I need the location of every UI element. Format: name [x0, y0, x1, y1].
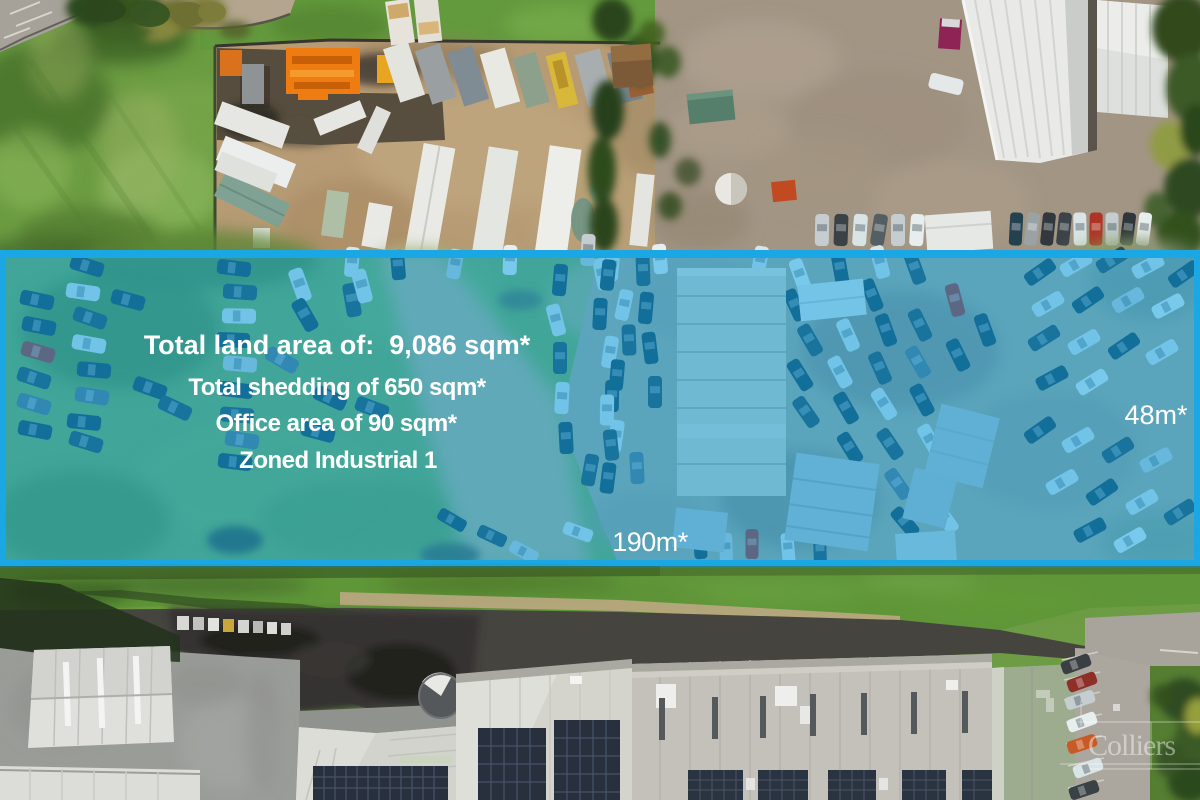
svg-text:Total land area of: 9,086 sqm: Total land area of: 9,086 sqm* [144, 330, 531, 360]
svg-text:Colliers: Colliers [1088, 729, 1175, 762]
svg-text:48m*: 48m* [1124, 400, 1188, 430]
svg-text:190m*: 190m* [612, 527, 689, 557]
svg-text:Total shedding of 650 sqm*: Total shedding of 650 sqm* [188, 374, 486, 401]
svg-text:Zoned Industrial 1: Zoned Industrial 1 [239, 447, 437, 474]
svg-text:Office area of 90 sqm*: Office area of 90 sqm* [215, 410, 457, 437]
